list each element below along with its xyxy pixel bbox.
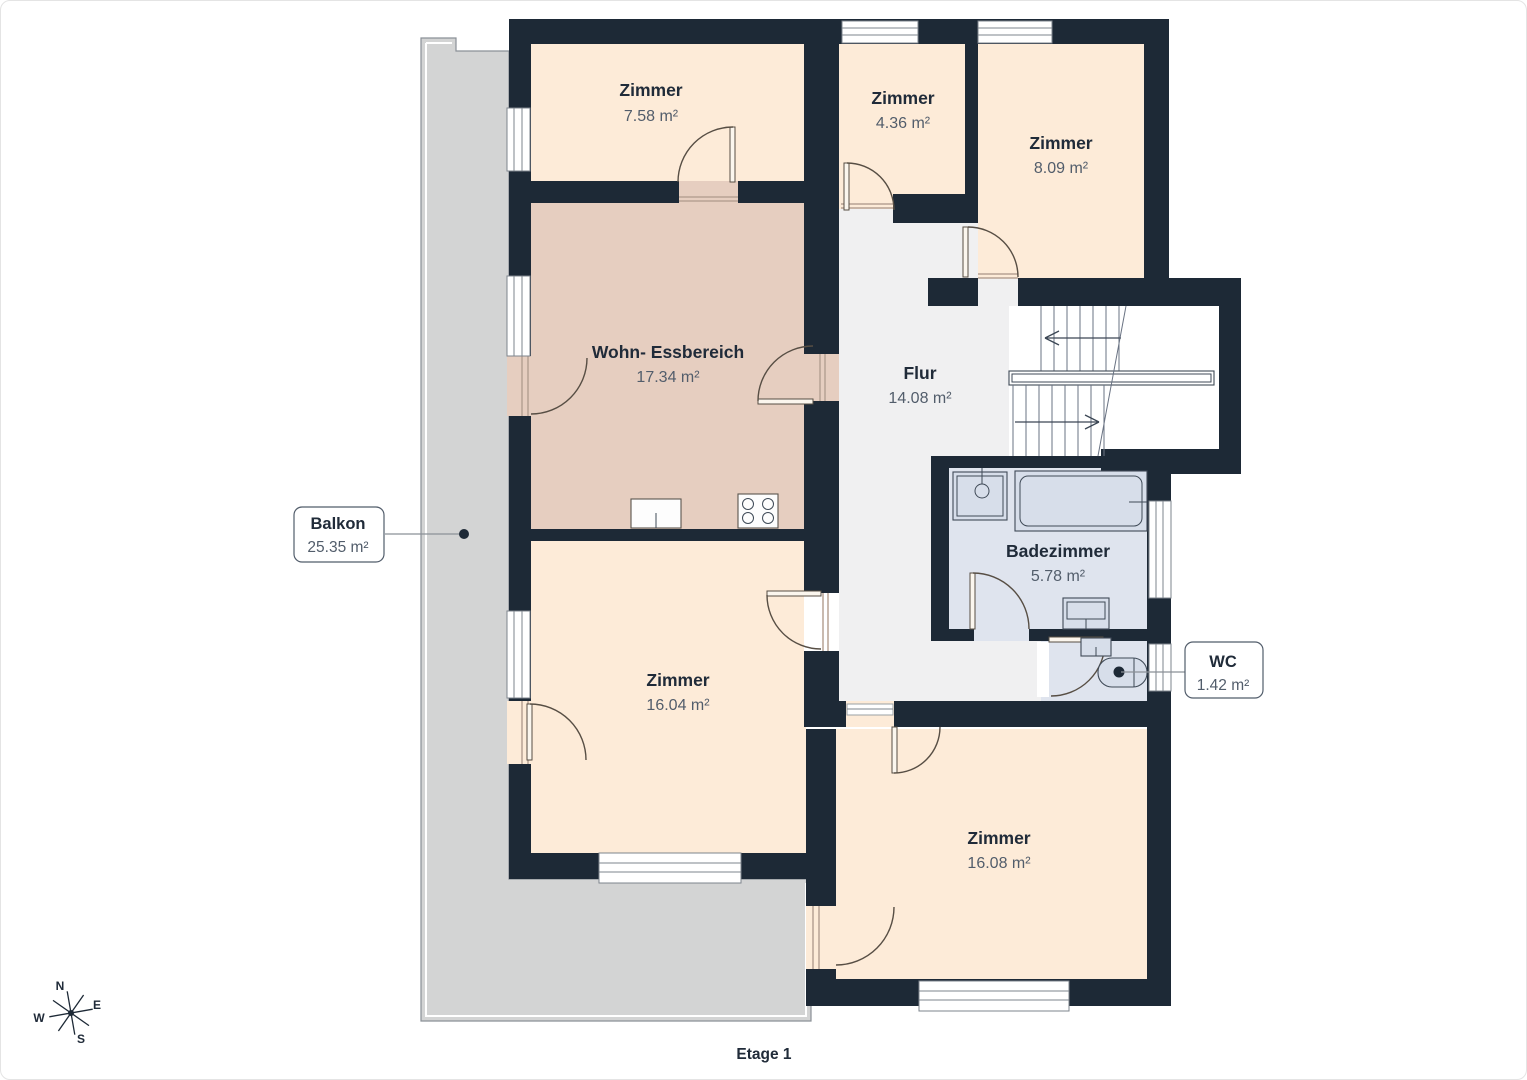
compass-rose: N E W S [33,979,101,1046]
window [507,611,530,698]
room-flur-floor [839,209,931,701]
room-label: Zimmer [646,670,709,690]
room-label: Zimmer [967,828,1030,848]
window [507,108,530,171]
floorplan-canvas: Zimmer 7.58 m² Zimmer 4.36 m² Zimmer 8.0… [1,1,1527,1080]
room-area: 17.34 m² [636,369,700,386]
callout-area: 1.42 m² [1197,677,1250,694]
compass-s: S [77,1032,85,1046]
window [599,853,741,883]
room-label: Wohn- Essbereich [592,342,744,362]
room-area: 4.36 m² [876,115,931,132]
callout-label: WC [1209,653,1237,671]
room-area: 5.78 m² [1031,568,1086,585]
window [842,21,918,43]
room-label: Badezimmer [1006,541,1110,561]
kitchen-sink [631,499,681,528]
room-label: Zimmer [871,88,934,108]
shower-basin [953,468,1007,520]
callout-area: 25.35 m² [307,539,368,556]
room-area: 16.04 m² [646,697,710,714]
window [978,21,1052,43]
room-wohn-floor [531,203,806,529]
washbasin [1063,598,1109,629]
window [919,981,1069,1011]
wc-basin [1081,638,1111,656]
bathtub [1015,471,1147,531]
room-label: Zimmer [1029,133,1092,153]
room-area: 7.58 m² [624,108,679,125]
room-area: 14.08 m² [888,390,952,407]
compass-e: E [93,998,101,1012]
room-area: 16.08 m² [967,855,1031,872]
floorplan-page: Zimmer 7.58 m² Zimmer 4.36 m² Zimmer 8.0… [0,0,1527,1080]
window [1149,501,1171,598]
floor-title: Etage 1 [736,1046,792,1063]
room-area: 8.09 m² [1034,160,1089,177]
window [507,276,530,356]
compass-n: N [56,979,65,993]
stove [738,494,778,528]
room-label: Zimmer [619,80,682,100]
compass-w: W [33,1011,45,1025]
window [1149,644,1171,691]
callout-label: Balkon [310,515,365,533]
room-label: Flur [903,363,936,383]
